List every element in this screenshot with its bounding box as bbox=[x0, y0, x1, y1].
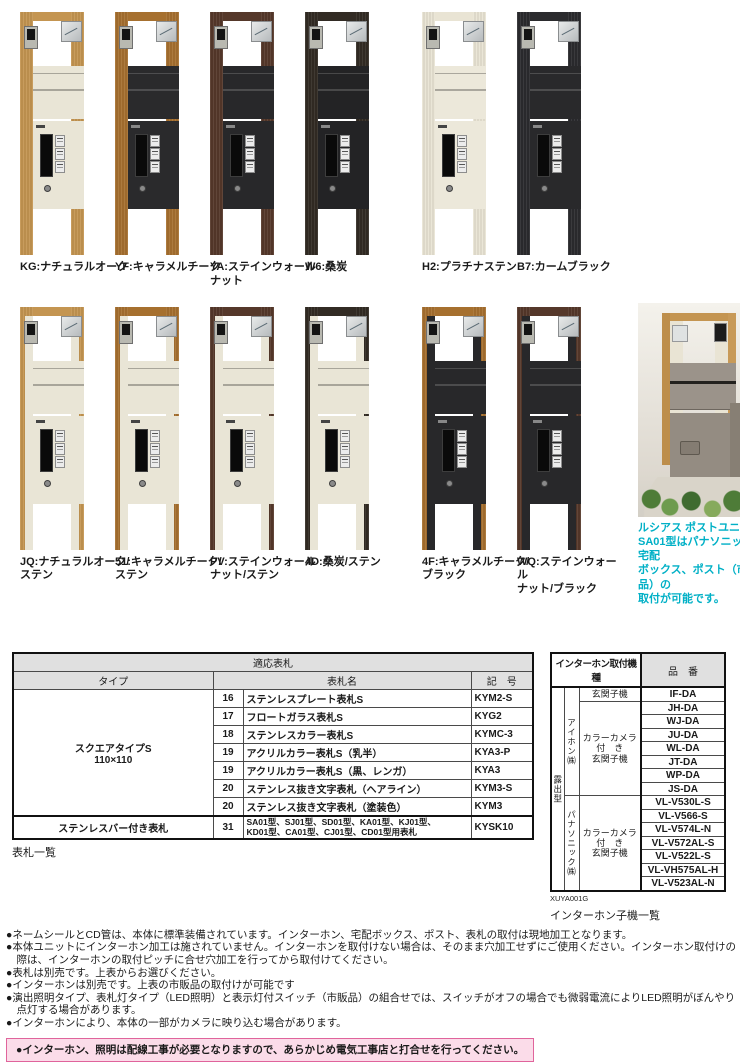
photo-side-box bbox=[730, 403, 740, 485]
product-variant: B7:カームブラック bbox=[517, 8, 612, 275]
plate-code: KYA3-P bbox=[471, 744, 533, 762]
model-no: JS-DA bbox=[641, 782, 725, 796]
photo-intercom-icon bbox=[714, 323, 727, 342]
model-no: VL-V574L-N bbox=[641, 823, 725, 837]
plate-name: ステンレス抜き文字表札（塗装色） bbox=[243, 798, 471, 817]
table-row: パナソニック㈱ カラーカメラ 付 き 玄関子機 VL-V530L-S bbox=[551, 796, 725, 810]
model-no: VL-V572AL-S bbox=[641, 836, 725, 850]
note-item: ●インターホンにより、本体の一部がカメラに映り込む場合があります。 bbox=[6, 1017, 736, 1030]
mail-slot-panel bbox=[530, 66, 581, 119]
mail-slot-panel bbox=[223, 66, 274, 119]
note-item: ●演出照明タイプ、表札灯タイプ（LED照明）と表示灯付スイッチ（市販品）の組合せ… bbox=[6, 992, 736, 1017]
variant-label: WQ:ステインウォール ナット/ブラック bbox=[517, 556, 627, 597]
document-code: XUYA001G bbox=[550, 894, 726, 903]
nameplate-icon bbox=[558, 316, 579, 337]
intercom-icon bbox=[119, 26, 133, 49]
nameplate-icon bbox=[61, 316, 82, 337]
plate-code: KYG2 bbox=[471, 708, 533, 726]
nameplate-icon bbox=[463, 21, 484, 42]
product-variant: KG:ナチュラルオーク bbox=[20, 8, 115, 275]
maker-cell: アイホン㈱ bbox=[564, 687, 579, 796]
mail-slot-panel bbox=[435, 66, 486, 119]
page-no: 20 bbox=[213, 798, 243, 817]
post-unit-image bbox=[305, 8, 369, 255]
post-unit-image bbox=[517, 8, 581, 255]
product-variant: 51:キャラメルチーク/ ステン bbox=[115, 303, 210, 584]
model-no: VL-V522L-S bbox=[641, 850, 725, 864]
handset-type-cell: カラーカメラ 付 き 玄関子機 bbox=[579, 701, 641, 796]
notes-list: ●ネームシールとCD管は、本体に標準装備されています。インターホン、宅配ボックス… bbox=[6, 929, 736, 1030]
variant-label: PV:ステインウォール ナット/ステン bbox=[210, 556, 320, 584]
tables-section: 適応表札 タイプ 表札名 記 号 スクエアタイプS 110×110 16 ステン… bbox=[0, 652, 740, 923]
mail-slot-panel bbox=[223, 361, 274, 414]
variant-label: YF:キャラメルチーク bbox=[115, 261, 225, 275]
note-item: ●ネームシールとCD管は、本体に標準装備されています。インターホン、宅配ボックス… bbox=[6, 929, 736, 942]
mail-slot-panel bbox=[33, 66, 84, 119]
intercom-icon bbox=[214, 321, 228, 344]
intercom-icon bbox=[426, 321, 440, 344]
warning-box: ●インターホン、照明は配線工事が必要となりますので、あらかじめ電気工事店と打合せ… bbox=[6, 1038, 534, 1062]
type-cell: ステンレスバー付き表札 bbox=[13, 816, 213, 838]
model-no: WL-DA bbox=[641, 742, 725, 756]
maker-cell: パナソニック㈱ bbox=[564, 796, 579, 891]
intercom-table: インターホン取付機種 品 番 露出型 アイホン㈱ 玄関子機 IF-DA カラーカ… bbox=[550, 652, 726, 892]
intercom-icon bbox=[521, 26, 535, 49]
product-variant: WQ:ステインウォール ナット/ブラック bbox=[517, 303, 612, 597]
col-header-part-no: 品 番 bbox=[641, 653, 725, 687]
page-no: 20 bbox=[213, 780, 243, 798]
intercom-table-title: インターホン取付機種 bbox=[551, 653, 641, 687]
mail-slot-panel bbox=[318, 361, 369, 414]
nameplate-icon bbox=[251, 316, 272, 337]
plate-name: ステンレス抜き文字表札（ヘアライン） bbox=[243, 780, 471, 798]
parcel-box-panel bbox=[318, 416, 369, 504]
table-row: ステンレスバー付き表札 31 SA01型、SJ01型、SD01型、KA01型、K… bbox=[13, 816, 533, 838]
variant-label: 4D:桑炭/ステン bbox=[305, 556, 415, 570]
note-item: ●本体ユニットにインターホン加工は施されていません。インターホンを取付けない場合… bbox=[6, 941, 736, 966]
variant-label: YA:ステインウォール ナット bbox=[210, 261, 320, 289]
variant-label: B7:カームブラック bbox=[517, 261, 627, 275]
photo-caption: ルシアス ポストユニット SA01型はパナソニック製宅配 ボックス、ポスト（市販… bbox=[638, 521, 740, 607]
nameplate-table-block: 適応表札 タイプ 表札名 記 号 スクエアタイプS 110×110 16 ステン… bbox=[12, 652, 534, 859]
page-no: 18 bbox=[213, 726, 243, 744]
mail-slot-panel bbox=[435, 361, 486, 414]
parcel-box-panel bbox=[530, 121, 581, 209]
mail-slot-panel bbox=[128, 66, 179, 119]
parcel-box-panel bbox=[318, 121, 369, 209]
intercom-table-block: インターホン取付機種 品 番 露出型 アイホン㈱ 玄関子機 IF-DA カラーカ… bbox=[550, 652, 726, 923]
model-no: VL-V523AL-N bbox=[641, 877, 725, 891]
parcel-box-panel bbox=[530, 416, 581, 504]
model-no: WP-DA bbox=[641, 769, 725, 783]
parcel-box-panel bbox=[223, 416, 274, 504]
photo-nameplate-icon bbox=[672, 325, 688, 342]
plate-code: KYM3-S bbox=[471, 780, 533, 798]
model-no: VL-V530L-S bbox=[641, 796, 725, 810]
intercom-table-caption: インターホン子機一覧 bbox=[550, 907, 726, 923]
page-no: 16 bbox=[213, 690, 243, 708]
col-header-name: 表札名 bbox=[213, 672, 471, 690]
product-variant: H2:プラチナステン bbox=[422, 8, 517, 275]
variant-label: KG:ナチュラルオーク bbox=[20, 261, 130, 275]
post-unit-image bbox=[20, 303, 84, 550]
page-no: 19 bbox=[213, 762, 243, 780]
plate-code: KYM3 bbox=[471, 798, 533, 817]
post-unit-image bbox=[115, 303, 179, 550]
parcel-box-panel bbox=[33, 416, 84, 504]
note-item: ●表札は別売です。上表からお選びください。 bbox=[6, 967, 736, 980]
plate-code: KYM2-S bbox=[471, 690, 533, 708]
model-no: JH-DA bbox=[641, 701, 725, 715]
post-unit-image bbox=[210, 303, 274, 550]
variant-label: 4F:キャラメルチーク/ ブラック bbox=[422, 556, 532, 584]
product-variant: W6:桑炭 bbox=[305, 8, 400, 275]
intercom-icon bbox=[521, 321, 535, 344]
intercom-icon bbox=[119, 321, 133, 344]
variant-label: H2:プラチナステン bbox=[422, 261, 532, 275]
nameplate-table-title: 適応表札 bbox=[13, 653, 533, 672]
variant-label: JQ:ナチュラルオーク/ ステン bbox=[20, 556, 130, 584]
nameplate-icon bbox=[346, 21, 367, 42]
page-no: 31 bbox=[213, 816, 243, 838]
page-no: 17 bbox=[213, 708, 243, 726]
plate-code: KYA3 bbox=[471, 762, 533, 780]
plate-name: フロートガラス表札S bbox=[243, 708, 471, 726]
color-variations-row-2: JQ:ナチュラルオーク/ ステン 51:キャラメルチーク/ ステン bbox=[0, 303, 740, 607]
mail-slot-panel bbox=[33, 361, 84, 414]
nameplate-table: 適応表札 タイプ 表札名 記 号 スクエアタイプS 110×110 16 ステン… bbox=[12, 652, 534, 839]
variant-label: 51:キャラメルチーク/ ステン bbox=[115, 556, 225, 584]
intercom-icon bbox=[214, 26, 228, 49]
col-header-code: 記 号 bbox=[471, 672, 533, 690]
intercom-icon bbox=[426, 26, 440, 49]
mail-slot-panel bbox=[530, 361, 581, 414]
plate-name: ステンレスプレート表札S bbox=[243, 690, 471, 708]
handset-type-cell: 玄関子機 bbox=[579, 687, 641, 701]
post-unit-image bbox=[20, 8, 84, 255]
intercom-icon bbox=[24, 26, 38, 49]
photo-frame-top bbox=[662, 313, 736, 321]
post-unit-image bbox=[422, 303, 486, 550]
photo-mailbox bbox=[670, 363, 736, 410]
model-no: VL-V566-S bbox=[641, 809, 725, 823]
table-row: スクエアタイプS 110×110 16 ステンレスプレート表札S KYM2-S bbox=[13, 690, 533, 708]
mail-slot-panel bbox=[128, 361, 179, 414]
plate-name: アクリルカラー表札S（乳半） bbox=[243, 744, 471, 762]
mail-slot-panel bbox=[318, 66, 369, 119]
application-photo-block: ルシアス ポストユニット SA01型はパナソニック製宅配 ボックス、ポスト（市販… bbox=[638, 303, 740, 607]
post-unit-image bbox=[517, 303, 581, 550]
parcel-box-panel bbox=[435, 121, 486, 209]
plate-name: ステンレスカラー表札S bbox=[243, 726, 471, 744]
type-cell: スクエアタイプS 110×110 bbox=[13, 690, 213, 817]
post-unit-image bbox=[115, 8, 179, 255]
nameplate-icon bbox=[251, 21, 272, 42]
model-no: VL-VH575AL-H bbox=[641, 863, 725, 877]
nameplate-icon bbox=[558, 21, 579, 42]
col-header-type: タイプ bbox=[13, 672, 213, 690]
variant-label: W6:桑炭 bbox=[305, 261, 415, 275]
intercom-icon bbox=[309, 26, 323, 49]
product-variant: 4F:キャラメルチーク/ ブラック bbox=[422, 303, 517, 584]
parcel-box-panel bbox=[128, 416, 179, 504]
plate-code: KYMC-3 bbox=[471, 726, 533, 744]
photo-parcel-box bbox=[670, 413, 730, 485]
color-variations-row-1: KG:ナチュラルオーク YF:キャラメルチーク bbox=[0, 8, 740, 289]
product-variant: PV:ステインウォール ナット/ステン bbox=[210, 303, 305, 584]
photo-frame-post-left bbox=[662, 313, 670, 465]
parcel-box-panel bbox=[435, 416, 486, 504]
product-variant: JQ:ナチュラルオーク/ ステン bbox=[20, 303, 115, 584]
nameplate-icon bbox=[61, 21, 82, 42]
intercom-icon bbox=[24, 321, 38, 344]
parcel-box-panel bbox=[223, 121, 274, 209]
mount-type-cell: 露出型 bbox=[551, 687, 564, 891]
plate-name: アクリルカラー表札S（黒、レンガ） bbox=[243, 762, 471, 780]
nameplate-table-caption: 表札一覧 bbox=[12, 844, 534, 860]
nameplate-icon bbox=[156, 21, 177, 42]
handset-type-cell: カラーカメラ 付 き 玄関子機 bbox=[579, 796, 641, 891]
model-no: JT-DA bbox=[641, 755, 725, 769]
post-unit-image bbox=[422, 8, 486, 255]
product-variant: YF:キャラメルチーク bbox=[115, 8, 210, 275]
product-variant: 4D:桑炭/ステン bbox=[305, 303, 400, 570]
model-no: WJ-DA bbox=[641, 715, 725, 729]
table-row: 露出型 アイホン㈱ 玄関子機 IF-DA bbox=[551, 687, 725, 701]
photo-plants bbox=[638, 477, 740, 517]
nameplate-icon bbox=[156, 316, 177, 337]
catalog-page: KG:ナチュラルオーク YF:キャラメルチーク bbox=[0, 8, 740, 1024]
model-no: JU-DA bbox=[641, 728, 725, 742]
plate-name: SA01型、SJ01型、SD01型、KA01型、KJ01型、 KD01型、CA0… bbox=[243, 816, 471, 838]
plate-code: KYSK10 bbox=[471, 816, 533, 838]
note-item: ●インターホンは別売です。上表の市販品の取付けが可能です bbox=[6, 979, 736, 992]
post-unit-image bbox=[210, 8, 274, 255]
intercom-icon bbox=[309, 321, 323, 344]
parcel-box-panel bbox=[128, 121, 179, 209]
page-no: 19 bbox=[213, 744, 243, 762]
model-no: IF-DA bbox=[641, 687, 725, 701]
post-unit-photo bbox=[638, 303, 740, 517]
post-unit-image bbox=[305, 303, 369, 550]
nameplate-icon bbox=[346, 316, 367, 337]
parcel-box-panel bbox=[33, 121, 84, 209]
nameplate-icon bbox=[463, 316, 484, 337]
product-variant: YA:ステインウォール ナット bbox=[210, 8, 305, 289]
